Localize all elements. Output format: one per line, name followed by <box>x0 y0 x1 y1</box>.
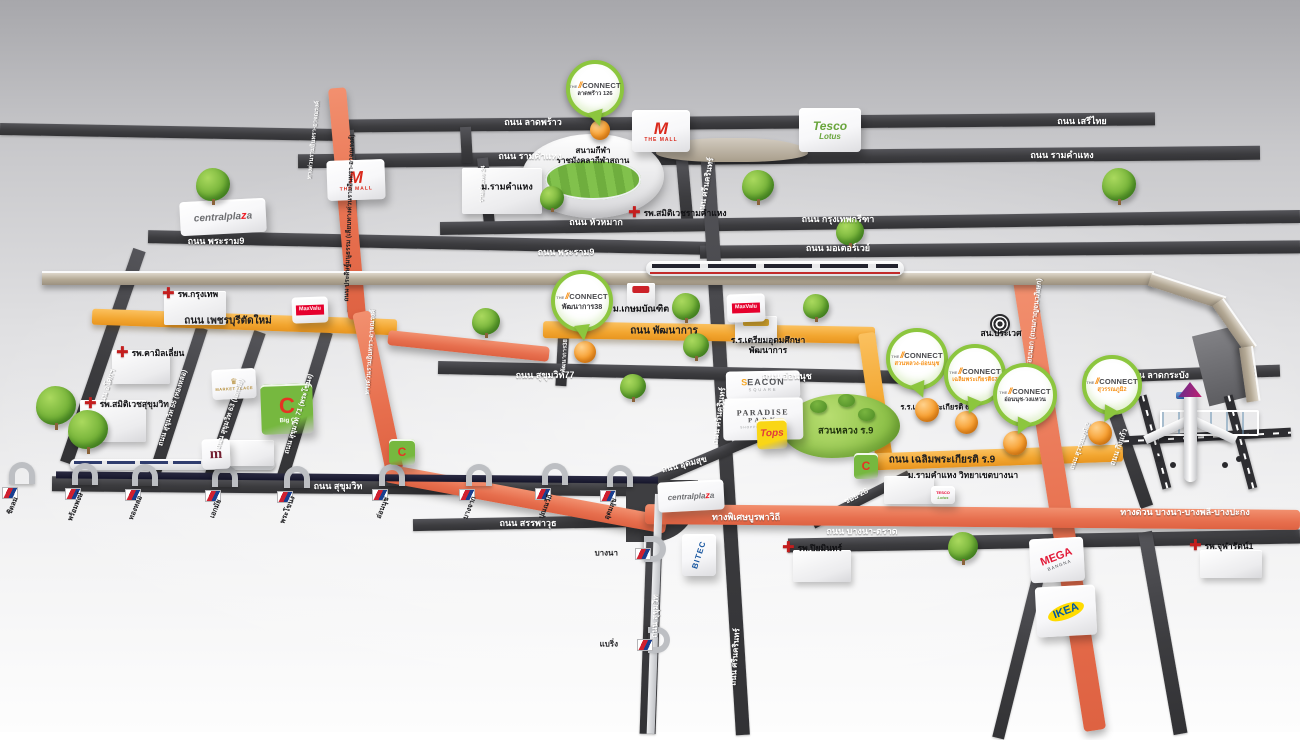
airplane-engine <box>1170 462 1176 468</box>
park-label: สวนหลวง ร.9 <box>818 424 873 439</box>
tree-icon-3 <box>1102 168 1136 207</box>
bts-station-arch <box>542 463 568 485</box>
centralplaza-ramindra-logo-line: centralplaza <box>194 210 253 224</box>
maxvalu-phetchaburi-logo-text: MaxValu <box>296 305 324 315</box>
park-tree-icon <box>838 394 855 407</box>
bts-station-v-1[interactable]: แบริ่ง <box>600 638 618 651</box>
road-motorway <box>700 240 1300 258</box>
airplane-engine <box>1222 462 1228 468</box>
landmark-bigc-mini-phrakanong: C <box>389 439 415 465</box>
bts-station-v-0[interactable]: บางนา <box>595 547 618 560</box>
centralplaza-bangna-logo-text: a <box>710 491 715 499</box>
connect-logo-pin-name: CONNECT <box>904 352 942 360</box>
hospital-0: ✚รพ.กรุงเทพ <box>162 286 218 301</box>
hospital-cross-icon: ✚ <box>116 345 129 360</box>
tops-logo-line: Tops <box>760 429 784 440</box>
tree-trunk <box>87 447 90 454</box>
tree-trunk <box>685 318 688 323</box>
poi-label-0: ม.รามคำแหง <box>481 182 532 193</box>
poi-label-2: ร.ร.เตรียมอุดมศึกษาพัฒนาการ <box>731 335 806 355</box>
pin-sublabel: สุวรรณภูมิ2 <box>1097 388 1126 394</box>
connect-logo-pin-name: CONNECT <box>569 293 607 301</box>
road-label-3: ถนน รามคำแหง <box>1030 148 1093 162</box>
landmark-bigc-mini-chaloemphrakiat: C <box>854 453 878 479</box>
connect-logo-pin-slash: // <box>958 367 961 376</box>
connect-logo-pin-the: THE <box>1086 381 1094 385</box>
bitec-logo: BITEC <box>691 540 708 570</box>
tree-icon-5 <box>672 293 700 325</box>
road-label-9: ถนน เพชรบุรีตัดใหม่ <box>184 314 271 329</box>
road-label-18: ทางด่วน บางนา-บางพลี-บางปะกง <box>1120 505 1249 519</box>
themall-bangkapi-logo-line: THE MALL <box>644 138 677 143</box>
themall-bangkapi-logo-text: M <box>654 120 668 137</box>
road-label-5: ถนน กรุงเทพกรีฑา <box>802 212 875 226</box>
tree-trunk <box>815 317 818 322</box>
building-9 <box>1200 550 1262 578</box>
tree-crown <box>68 410 108 449</box>
pin-ladprao-126[interactable]: THE//CONNECTลาดพร้าว 126 <box>566 60 624 118</box>
road-label-0: ถนน ลาดพร้าว <box>504 115 562 129</box>
tree-icon-0 <box>196 168 230 207</box>
park-tree-icon <box>858 408 875 421</box>
landmark-bitec: BITEC <box>682 534 716 576</box>
landmark-ikea: IKEA <box>1035 584 1098 637</box>
tree-trunk <box>55 423 58 430</box>
connect-logo-pin-slash: // <box>1095 377 1098 386</box>
bts-station-arch <box>284 466 310 488</box>
centralplaza-bangna-logo-text: pla <box>694 492 706 501</box>
road-label-1: ถนน เสรีไทย <box>1057 114 1106 128</box>
ikea-logo-line: IKEA <box>1045 597 1086 625</box>
road-kingkaew-south <box>1138 531 1187 735</box>
tree-crown <box>948 532 978 561</box>
landmark-tops: Tops <box>756 418 787 449</box>
hospital-label: รพ.ปิยมินทร์ <box>798 541 843 555</box>
bts-station-arch <box>466 464 492 486</box>
bitec-logo-line: BITEC <box>691 540 708 570</box>
hospital-label: รพ.จุฬารัตน์1 <box>1205 539 1254 553</box>
tesco-lotus-logo-text: Lotus <box>819 133 841 141</box>
connect-logo: THE//CONNECT <box>556 292 608 301</box>
bigc-mini-chaloemphrakiat-logo-text: C <box>862 460 871 472</box>
centralplaza-ramindra-logo-text: central <box>194 212 227 224</box>
ikea-logo-text: IKEA <box>1045 597 1086 625</box>
pin-sublabel: อ่อนนุช-วงแหวน <box>1004 398 1046 404</box>
building-cap <box>632 286 649 293</box>
tree-trunk <box>485 333 488 338</box>
pin-suanluang-onnut[interactable]: THE//CONNECTสวนหลวง-อ่อนนุช <box>886 328 948 390</box>
road-top-left <box>0 123 340 141</box>
hospital-label: รพ.สมิติเวชสุขุมวิท <box>100 397 169 411</box>
landmark-maxvalu-phetchaburi: MaxValu <box>292 296 329 323</box>
airplane-engine <box>1236 456 1242 462</box>
connect-logo-pin-the: THE <box>569 85 577 89</box>
tree-trunk <box>212 199 215 205</box>
tesco-lotus-mini-bangna-logo-text: TESCO <box>936 491 950 495</box>
road-label-17: ทางพิเศษบูรพาวิถี <box>712 510 780 524</box>
tesco-lotus-logo-line: Tesco <box>813 120 847 132</box>
airplane-tail <box>1176 382 1204 397</box>
hospital-label: รพ.กรุงเทพ <box>178 287 219 301</box>
pin-pattanakarn-38[interactable]: THE//CONNECTพัฒนาการ38 <box>551 270 613 332</box>
themall-bangkapi-logo-text: THE MALL <box>644 138 677 143</box>
bts-station-arch <box>9 462 35 484</box>
pin-location-dot-pattanakarn-38[interactable] <box>574 341 596 363</box>
airport-rail-link-train <box>646 261 904 276</box>
road-ladprao-stub <box>460 127 473 164</box>
hospital-1: ✚รพ.คามิลเลี่ยน <box>116 345 184 360</box>
connect-logo-pin-name: CONNECT <box>582 82 620 90</box>
ikea-logo: IKEA <box>1045 597 1086 625</box>
connect-logo-pin-the: THE <box>999 391 1007 395</box>
pin-location-dot-suanluang-onnut[interactable] <box>915 398 939 422</box>
maxvalu-pattanakarn-logo-text: MaxValu <box>732 303 760 313</box>
road-label-7: ถนน พระราม9 <box>538 245 595 259</box>
tree-crown <box>672 293 700 320</box>
connect-logo-pin-slash: // <box>578 81 581 90</box>
tree-trunk <box>1118 199 1121 205</box>
pin-balloon[interactable]: THE//CONNECTลาดพร้าว 126 <box>566 60 624 118</box>
airplane-icon <box>1184 390 1197 482</box>
tree-icon-11 <box>948 532 978 567</box>
road-label-2: ถนน รามคำแหง <box>498 149 561 163</box>
pin-balloon[interactable]: THE//CONNECTสวนหลวง-อ่อนนุช <box>886 328 948 390</box>
road-label-10: ถนน พัฒนาการ <box>630 324 698 339</box>
stadium-label: สนามกีฬา ราชมังคลากีฬาสถาน <box>557 146 630 166</box>
tesco-lotus-mini-bangna-logo: TESCOLotus <box>936 491 950 500</box>
landmark-tesco-lotus-mini-bangna: TESCOLotus <box>931 486 955 504</box>
tree-crown <box>1102 168 1136 201</box>
road-label-14: ถนน สรรพาวุธ <box>500 516 557 530</box>
bigc-mini-phrakanong-logo: C <box>398 446 407 458</box>
hospital-label: รพ.สมิติเวชรามคำแหง <box>644 206 727 220</box>
pin-suvarnabhumi-2[interactable]: THE//CONNECTสุวรรณภูมิ2 <box>1082 355 1142 415</box>
centralplaza-ramindra-logo: centralplaza <box>194 210 253 224</box>
landmark-themall-ramkhamhaeng: MTHE MALL <box>326 159 385 201</box>
tree-crown <box>472 308 500 335</box>
seacon-square-logo-line: SQUARE <box>749 388 778 393</box>
road-label-16: ถนน บางนา-ตราด <box>826 524 897 538</box>
themall-bangkapi-logo: MTHE MALL <box>644 120 677 143</box>
tree-crown <box>620 374 646 399</box>
maxvalu-phetchaburi-logo-line: MaxValu <box>296 305 324 315</box>
road-label-12: ถนน อ่อนนุช <box>762 369 811 383</box>
hospital-cross-icon: ✚ <box>162 286 175 301</box>
centralplaza-bangna-logo-text: central <box>667 492 694 501</box>
themall-bangkapi-logo-line: M <box>654 120 668 137</box>
pin-balloon[interactable]: THE//CONNECTพัฒนาการ38 <box>551 270 613 332</box>
tesco-lotus-logo-text: Tesco <box>813 120 847 132</box>
tree-icon-8 <box>620 374 646 404</box>
tree-icon-1 <box>742 170 774 207</box>
stadium-label-line1: สนามกีฬา <box>557 146 630 156</box>
tree-trunk <box>695 356 698 361</box>
hospital-cross-icon: ✚ <box>782 540 795 555</box>
pin-sublabel: พัฒนาการ38 <box>562 303 602 310</box>
stadium-label-line2: ราชมังคลากีฬาสถาน <box>557 156 630 166</box>
airplane-engine <box>1156 456 1162 462</box>
tesco-lotus-mini-bangna-logo-line: TESCO <box>936 491 950 495</box>
tops-logo: Tops <box>760 429 784 440</box>
pin-onnut-wongwaen[interactable]: THE//CONNECTอ่อนนุช-วงแหวน <box>993 363 1057 427</box>
landmark-themall-bangkapi: MTHE MALL <box>632 110 690 152</box>
maxvalu-phetchaburi-logo: MaxValu <box>296 305 324 315</box>
tesco-lotus-mini-bangna-logo-line: Lotus <box>938 496 949 500</box>
connect-logo: THE//CONNECT <box>891 351 943 360</box>
poi-label-3: ม.รามคำแหง วิทยาเขตบางนา <box>908 470 1018 480</box>
tree-icon-4 <box>472 308 500 340</box>
road-label-6: ถนน พระราม9 <box>188 234 245 248</box>
hospital-cross-icon: ✚ <box>84 396 97 411</box>
hospital-4: ✚รพ.ปิยมินทร์ <box>782 540 842 555</box>
tree-crown <box>540 186 564 210</box>
connect-logo-pin-the: THE <box>556 296 564 300</box>
maxvalu-pattanakarn-logo-line: MaxValu <box>732 303 760 313</box>
road-label-8: ถนน มอเตอร์เวย์ <box>806 241 870 255</box>
pin-sublabel: ลาดพร้าว 126 <box>577 92 612 98</box>
pin-sublabel: เฉลิมพระเกียรติ67 <box>952 378 998 384</box>
bigc-mini-chaloemphrakiat-logo-line: C <box>862 460 871 472</box>
hospital-5: ✚รพ.จุฬารัตน์1 <box>1189 538 1253 553</box>
bts-flag-icon[interactable] <box>637 639 653 651</box>
centralplaza-bangna-logo-line: centralplaza <box>667 490 714 501</box>
tree-icon-12 <box>540 186 564 214</box>
tree-trunk <box>962 559 965 565</box>
road-label-25: ถนน สุขุมวิท <box>648 594 663 638</box>
seacon-square-logo-text: SQUARE <box>749 388 778 393</box>
hospital-cross-icon: ✚ <box>1189 538 1202 553</box>
bts-station-arch <box>72 463 98 485</box>
tree-trunk <box>757 199 760 205</box>
connect-logo-pin-slash: // <box>1008 387 1011 396</box>
road-label-20: ถนน เฉลิมพระเกียรติ ร.9 <box>889 453 995 468</box>
connect-logo-pin-slash: // <box>565 292 568 301</box>
park-tree-icon <box>810 400 827 413</box>
hospital-cross-icon: ✚ <box>628 205 641 220</box>
road-label-13: ถนน สุขุมวิท <box>314 479 363 493</box>
bigc-mini-phrakanong-logo-line: C <box>398 446 407 458</box>
maxvalu-pattanakarn-logo: MaxValu <box>732 303 760 313</box>
centralplaza-ramindra-logo-text: pla <box>226 212 241 223</box>
landmark-tesco-lotus: TescoLotus <box>799 108 861 152</box>
landmark-mega-bangna: MEGABANGNA <box>1029 537 1085 584</box>
hospital-2: ✚รพ.สมิติเวชสุขุมวิท <box>84 396 169 411</box>
centralplaza-bangna-logo: centralplaza <box>667 490 714 501</box>
centralplaza-ramindra-logo-text: a <box>246 211 252 221</box>
tree-crown <box>803 294 829 319</box>
tree-icon-10 <box>68 410 108 456</box>
tesco-lotus-mini-bangna-logo-text: Lotus <box>938 496 949 500</box>
connect-logo-pin-the: THE <box>891 355 899 359</box>
connect-logo: THE//CONNECT <box>1086 377 1138 386</box>
bts-station-arch <box>379 464 405 486</box>
landmark-maxvalu-pattanakarn: MaxValu <box>727 293 766 322</box>
pin-sublabel: สวนหลวง-อ่อนนุช <box>895 362 940 368</box>
tree-crown <box>742 170 774 201</box>
poi-label-1: ม.เกษมบัณฑิต <box>613 304 669 315</box>
hospital-label: รพ.คามิลเลี่ยน <box>132 346 185 360</box>
building-7 <box>884 476 934 504</box>
tree-trunk <box>632 397 635 402</box>
building-4 <box>228 440 274 466</box>
mega-bangna-logo: MEGABANGNA <box>1039 546 1076 573</box>
road-expwy-link <box>387 330 550 362</box>
connect-logo-pin-the: THE <box>949 371 957 375</box>
bts-station-arch <box>607 465 633 487</box>
pin-tail <box>574 324 592 342</box>
pin-balloon[interactable]: THE//CONNECTอ่อนนุช-วงแหวน <box>993 363 1057 427</box>
pin-balloon[interactable]: THE//CONNECTสุวรรณภูมิ2 <box>1082 355 1142 415</box>
tree-crown <box>196 168 230 201</box>
connect-logo: THE//CONNECT <box>999 387 1051 396</box>
tesco-lotus-logo: TescoLotus <box>813 120 847 141</box>
tesco-lotus-logo-line: Lotus <box>819 133 841 141</box>
connect-logo-pin-name: CONNECT <box>1012 388 1050 396</box>
road-label-4: ถนน หัวหมาก <box>569 215 623 229</box>
poi-label-4: สน.ประเวศ <box>981 328 1022 338</box>
connect-logo-pin-name: CONNECT <box>1099 378 1137 386</box>
bitec-logo-text: BITEC <box>691 540 708 570</box>
bigc-mini-phrakanong-logo-text: C <box>398 446 407 458</box>
bigc-mini-chaloemphrakiat-logo: C <box>862 460 871 472</box>
road-sukhumvit77-onnut <box>438 361 913 384</box>
connect-logo: THE//CONNECT <box>569 81 621 90</box>
map-canvas: สนามกีฬา ราชมังคลากีฬาสถาน สวนหลวง ร.9 ถ… <box>0 0 1300 732</box>
bts-flag-icon[interactable] <box>635 548 651 560</box>
tree-trunk <box>551 208 554 212</box>
tops-logo-text: Tops <box>760 429 784 440</box>
connect-logo-pin-slash: // <box>900 351 903 360</box>
suvarnabhumi-airport <box>1118 380 1300 498</box>
landmark-centralplaza-bangna: centralplaza <box>657 479 724 512</box>
bts-station-arch <box>132 464 158 486</box>
tree-icon-7 <box>803 294 829 324</box>
hospital-3: ✚รพ.สมิติเวชรามคำแหง <box>628 205 727 220</box>
road-ladprao-serithai <box>335 112 1155 132</box>
